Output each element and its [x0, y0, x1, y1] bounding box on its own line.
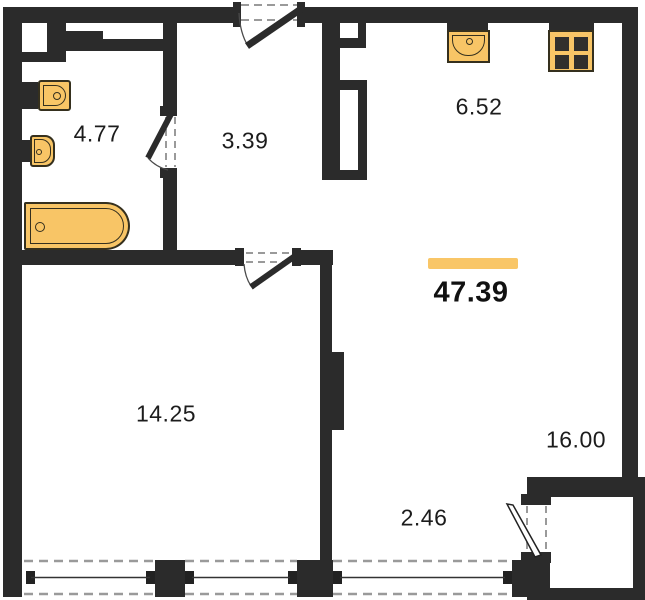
room-label-kitchen: 6.52 [456, 94, 503, 121]
room-label-balcony: 2.46 [401, 505, 448, 532]
shaft-right [358, 80, 367, 180]
shaft-top [340, 80, 358, 90]
wall-left [3, 7, 22, 597]
wall-top-right [305, 7, 638, 23]
window2-tick-left [185, 571, 194, 584]
bathroom-divider-upper [163, 23, 177, 115]
living-wall-pilaster [332, 352, 344, 430]
bathroom-door-jamb-bottom [160, 168, 177, 178]
entrance-door-jamb-right [297, 2, 305, 27]
duct-hook-bottom [340, 38, 366, 48]
bathroom-door-jamb-top [160, 106, 177, 116]
window3-tick-left [333, 571, 342, 584]
bedroom-door-jamb-left [235, 248, 244, 266]
entrance-door-jamb-left [233, 2, 241, 27]
balcony-door-jamb-top [521, 494, 551, 505]
bathroom-sink-icon [38, 80, 71, 111]
window-pier-1 [155, 560, 185, 597]
hall-kitchen-wall [322, 23, 340, 180]
toilet-icon [30, 135, 55, 167]
total-area-accent-bar [428, 258, 518, 269]
window-2 [185, 561, 297, 594]
wall-top-left [3, 7, 233, 23]
window-3 [333, 561, 512, 594]
bathroom-top-wall-b [103, 39, 165, 51]
toilet-mount [22, 140, 30, 162]
room-label-bedroom: 14.25 [136, 401, 196, 428]
stove-icon [548, 30, 594, 72]
room-label-bathroom: 4.77 [74, 121, 121, 148]
bathroom-bottom-wall [20, 250, 235, 265]
bathtub-icon [24, 202, 130, 250]
room-label-hallway: 3.39 [222, 128, 269, 155]
bathroom-sink-mount [22, 82, 38, 109]
window1-tick-left [26, 571, 35, 584]
floor-plan: 4.77 3.39 6.52 14.25 16.00 2.46 47.39 [0, 0, 645, 600]
window3-tick-right [503, 571, 512, 584]
bedroom-door-jamb-right [292, 248, 301, 266]
bathroom-door [148, 114, 175, 170]
kitchen-sink-icon [447, 30, 490, 63]
room-label-living: 16.00 [546, 427, 606, 454]
wall-right [622, 7, 638, 482]
balcony-floor [550, 497, 633, 588]
entrance-door [239, 5, 301, 46]
total-area-label: 47.39 [433, 277, 508, 310]
bathroom-top-wall-a [66, 31, 103, 51]
balcony-door-opening [522, 505, 550, 552]
window-1 [24, 561, 155, 594]
window2-tick-right [288, 571, 297, 584]
bedroom-door [244, 253, 295, 287]
living-wall [320, 250, 332, 565]
window-pier-2 [297, 560, 333, 597]
balcony-door-jamb-bottom [521, 552, 551, 563]
window1-tick-right [146, 571, 155, 584]
shaft-bottom [322, 170, 366, 180]
bathroom-duct-bottom [22, 52, 66, 62]
